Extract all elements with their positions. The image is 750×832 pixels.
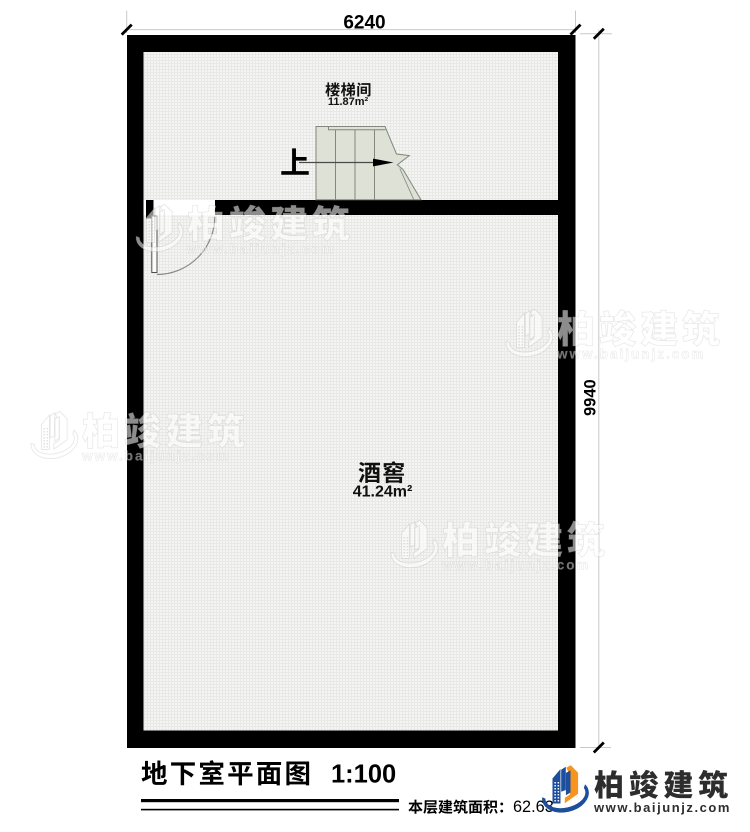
svg-text:www.baijunjz.com: www.baijunjz.com: [186, 242, 336, 257]
svg-text:www.baijunjz.com: www.baijunjz.com: [556, 347, 706, 362]
svg-text:41.24m²: 41.24m²: [353, 483, 413, 500]
svg-text:www.baijunjz.com: www.baijunjz.com: [441, 558, 591, 573]
svg-text:6240: 6240: [343, 13, 385, 34]
svg-text:www.baijunjz.com: www.baijunjz.com: [593, 800, 731, 815]
svg-text:1:100: 1:100: [331, 761, 396, 789]
svg-text:9940: 9940: [582, 379, 600, 416]
svg-text:11.87m²: 11.87m²: [328, 96, 369, 108]
svg-text:www.baijunjz.com: www.baijunjz.com: [81, 449, 231, 464]
